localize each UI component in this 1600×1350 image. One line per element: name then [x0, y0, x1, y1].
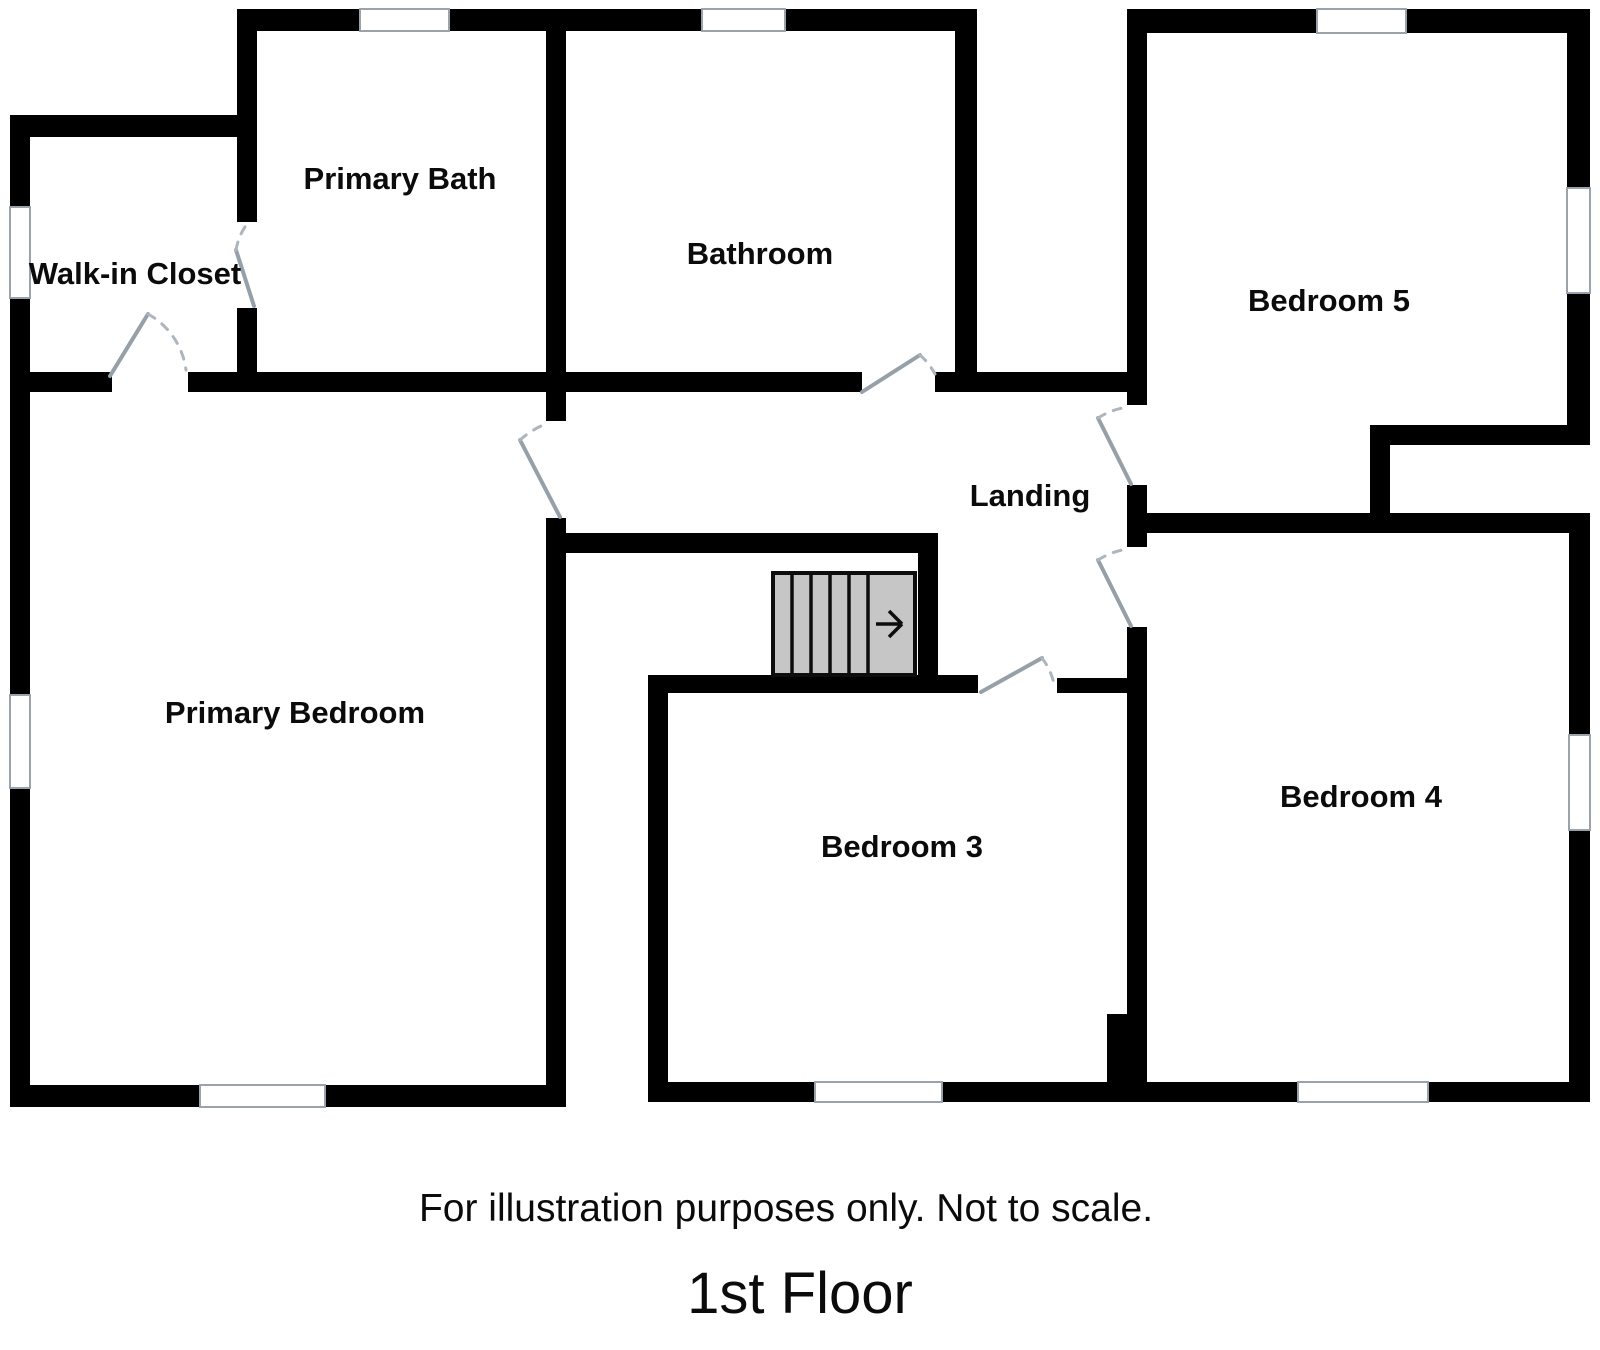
room-label-primary-bath: Primary Bath: [304, 161, 497, 196]
floor-title: 1st Floor: [687, 1261, 913, 1326]
room-label-bathroom: Bathroom: [687, 236, 833, 271]
room-label-walk-in-closet: Walk-in Closet: [29, 256, 241, 291]
wall-primary-bath-left-stub: [237, 308, 257, 372]
wall-bedroom3-top-stub: [1057, 678, 1127, 693]
wall-primary-bedroom-bottom-b: [325, 1085, 566, 1107]
window-bedroom5-top: [1317, 9, 1406, 33]
window-bathroom-top: [702, 9, 785, 31]
wall-left-lower: [10, 788, 30, 1107]
wall-bedroom3-left: [648, 675, 668, 1102]
door-arc-primary-bedroom: [520, 423, 548, 440]
wall-bedroom3-bottom-b: [942, 1082, 1147, 1102]
wall-bedroom5-right-upper: [1567, 9, 1590, 188]
walls: [10, 9, 1590, 1107]
wall-bathroom-bottom: [566, 372, 862, 392]
door-leaf-bedroom5: [1098, 418, 1131, 484]
door-leaf-bedroom4: [1098, 560, 1131, 626]
door-arc-bedroom3: [1042, 658, 1055, 688]
window-bedroom4-bottom: [1298, 1082, 1428, 1102]
wall-stair-right: [918, 553, 938, 693]
door-leaf-bathroom: [862, 355, 920, 392]
wall-bathroom-right: [955, 9, 977, 392]
wall-landing-top: [935, 372, 1127, 392]
room-labels: Walk-in Closet Primary Bath Bathroom Bed…: [29, 161, 1443, 864]
wall-primary-bedroom-right: [546, 518, 566, 1107]
wall-closet-top: [10, 115, 257, 137]
wall-primary-bath-top-a: [237, 9, 360, 31]
wall-bedroom5-bottom-right: [1370, 425, 1590, 445]
room-label-bedroom-4: Bedroom 4: [1280, 779, 1443, 814]
wall-bedroom5-top-a: [1127, 9, 1317, 33]
floor-plan-page: Walk-in Closet Primary Bath Bathroom Bed…: [0, 0, 1600, 1350]
staircase: [773, 573, 915, 675]
wall-bathroom-top-a: [566, 9, 702, 31]
wall-chimney-notch: [1107, 1014, 1147, 1082]
window-bedroom4-right: [1569, 735, 1590, 830]
wall-bedroom4-bottom-a: [1147, 1082, 1298, 1102]
door-leaf-primary-bedroom: [520, 440, 560, 517]
door-leaves: [110, 250, 1131, 692]
wall-primary-bath-left: [237, 9, 257, 222]
door-arc-bedroom5: [1098, 407, 1128, 418]
wall-bedroom5-top-b: [1406, 9, 1590, 33]
wall-bathroom-left: [546, 9, 566, 421]
wall-bedroom4-top: [1140, 513, 1590, 533]
window-bedroom5-right: [1567, 188, 1590, 293]
wall-closet-bottom-a: [10, 372, 112, 392]
wall-bathroom-top-b: [785, 9, 955, 31]
window-primary-bath-top: [360, 9, 449, 31]
footer: For illustration purposes only. Not to s…: [419, 1187, 1153, 1326]
wall-bedroom3-bottom-a: [648, 1082, 815, 1102]
door-leaf-closet-entry: [110, 314, 148, 376]
wall-bedroom4-right-upper: [1569, 533, 1590, 735]
door-arc-closet-to-primary-bath: [236, 224, 247, 250]
room-label-bedroom-3: Bedroom 3: [821, 829, 983, 864]
door-arc-bathroom: [920, 355, 935, 374]
window-bedroom3-bottom: [815, 1082, 942, 1102]
window-primary-bedroom-left: [10, 695, 30, 788]
room-label-bedroom-5: Bedroom 5: [1248, 283, 1410, 318]
wall-primary-bedroom-bottom-a: [10, 1085, 200, 1107]
door-arcs: [148, 224, 1128, 688]
wall-closet-bottom-b: [188, 372, 566, 392]
room-label-landing: Landing: [970, 478, 1091, 513]
wall-bedroom3-top: [648, 675, 978, 693]
wall-left-mid: [10, 298, 30, 695]
wall-bedroom5-right-lower: [1567, 293, 1590, 445]
wall-divider-b3-b4: [1127, 627, 1147, 1017]
room-label-primary-bedroom: Primary Bedroom: [165, 695, 425, 730]
disclaimer-text: For illustration purposes only. Not to s…: [419, 1187, 1153, 1230]
window-primary-bedroom-bottom: [200, 1085, 325, 1107]
wall-bedroom5-left-upper: [1127, 9, 1147, 405]
wall-stair-top: [566, 533, 938, 553]
wall-closet-left-upper: [10, 115, 30, 207]
door-arc-bedroom4: [1098, 549, 1128, 560]
door-arc-closet-entry: [148, 314, 186, 370]
window-closet-left: [10, 207, 30, 298]
door-leaf-bedroom3: [981, 658, 1042, 692]
wall-bedroom4-right-lower: [1569, 830, 1590, 1102]
wall-bedroom4-bottom-b: [1428, 1082, 1590, 1102]
floor-plan-drawing: Walk-in Closet Primary Bath Bathroom Bed…: [0, 0, 1600, 1350]
